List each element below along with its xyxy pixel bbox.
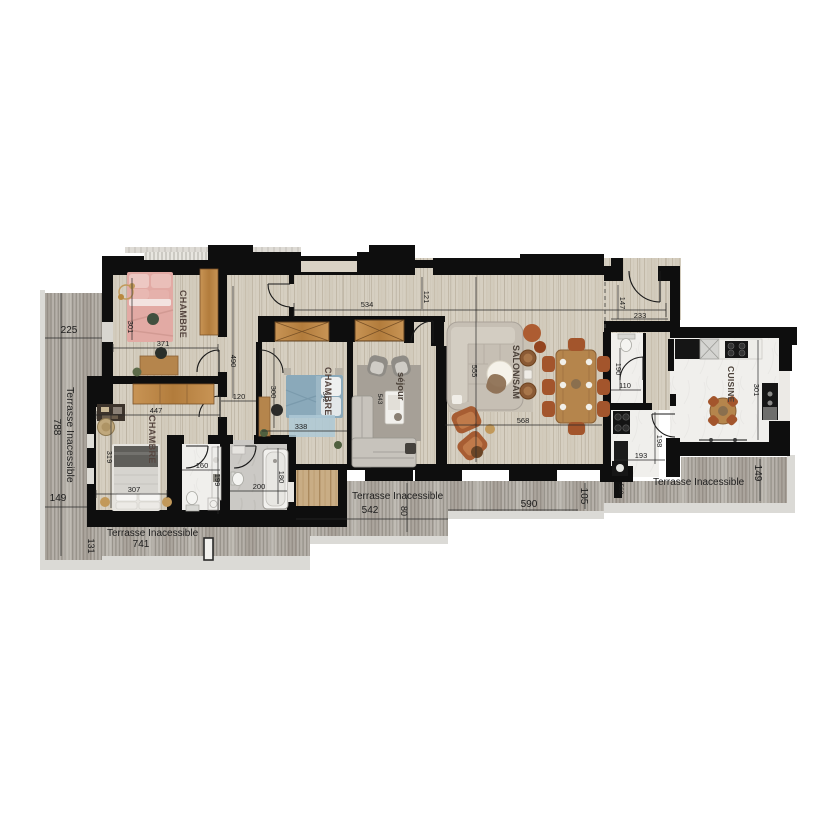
svg-text:542: 542 — [362, 505, 379, 516]
svg-text:490: 490 — [229, 355, 238, 368]
svg-text:120: 120 — [233, 392, 246, 401]
svg-text:307: 307 — [128, 485, 141, 494]
svg-text:788: 788 — [51, 419, 62, 436]
svg-text:147: 147 — [618, 297, 627, 310]
svg-text:741: 741 — [133, 539, 150, 550]
svg-text:198: 198 — [655, 435, 664, 448]
svg-text:199: 199 — [213, 474, 222, 487]
svg-text:Terrasse Inacessible: Terrasse Inacessible — [352, 491, 444, 502]
svg-text:233: 233 — [634, 311, 647, 320]
svg-text:149: 149 — [50, 493, 67, 504]
svg-text:Terrasse Inacessible: Terrasse Inacessible — [107, 528, 199, 539]
svg-text:568: 568 — [517, 416, 530, 425]
svg-text:131: 131 — [86, 538, 96, 553]
svg-text:447: 447 — [150, 406, 163, 415]
svg-text:371: 371 — [157, 339, 170, 348]
svg-text:CUISINE: CUISINE — [726, 366, 736, 403]
svg-text:110: 110 — [619, 381, 631, 390]
svg-text:CHAMBRE: CHAMBRE — [147, 415, 157, 464]
svg-text:555: 555 — [470, 365, 479, 378]
svg-text:200: 200 — [253, 482, 266, 491]
svg-text:190: 190 — [614, 363, 623, 376]
svg-text:301: 301 — [126, 321, 135, 334]
svg-text:121: 121 — [422, 291, 431, 304]
svg-text:Terrasse Inacessible: Terrasse Inacessible — [653, 477, 745, 488]
svg-text:534: 534 — [361, 300, 374, 309]
svg-text:300: 300 — [269, 386, 278, 399]
svg-text:543: 543 — [376, 394, 383, 405]
svg-text:193: 193 — [635, 451, 648, 460]
svg-text:225: 225 — [61, 325, 78, 336]
svg-text:338: 338 — [295, 422, 308, 431]
svg-text:CHAMBRE: CHAMBRE — [178, 290, 188, 338]
svg-text:149: 149 — [752, 465, 763, 482]
svg-text:560: 560 — [617, 484, 624, 495]
svg-text:590: 590 — [521, 499, 538, 510]
svg-text:180: 180 — [277, 471, 286, 484]
svg-text:80: 80 — [399, 506, 409, 516]
svg-text:Terrasse Inacessible: Terrasse Inacessible — [64, 387, 76, 483]
svg-text:319: 319 — [105, 451, 114, 464]
svg-text:CHAMBRE: CHAMBRE — [323, 367, 333, 416]
svg-text:105: 105 — [578, 488, 589, 505]
svg-text:SALON/SAM: SALON/SAM — [511, 345, 521, 399]
svg-text:301: 301 — [752, 384, 761, 397]
svg-text:séjour: séjour — [395, 372, 406, 401]
svg-text:160: 160 — [196, 461, 209, 470]
